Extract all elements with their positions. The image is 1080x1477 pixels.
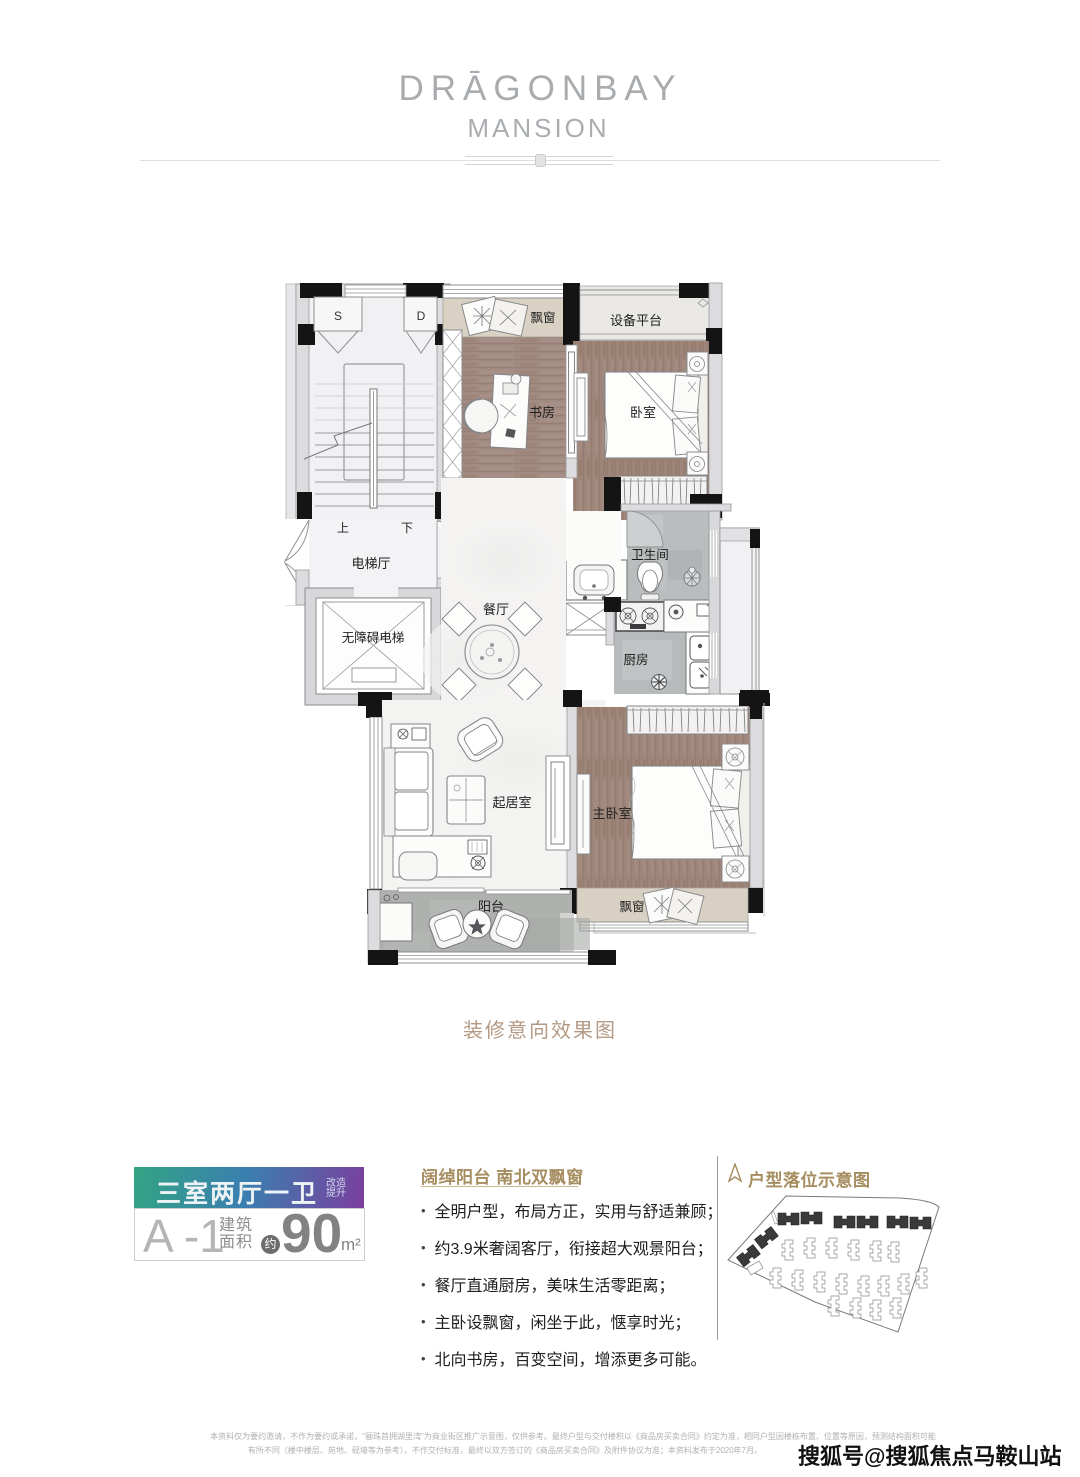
svg-text:上: 上 (337, 521, 349, 535)
svg-text:飘窗: 飘窗 (619, 900, 644, 914)
svg-text:电梯厅: 电梯厅 (351, 556, 390, 571)
svg-text:飘窗: 飘窗 (530, 311, 555, 325)
svg-text:S: S (334, 309, 342, 323)
svg-text:D: D (417, 309, 426, 323)
svg-text:卧室: 卧室 (630, 405, 656, 420)
svg-text:起居室: 起居室 (492, 795, 531, 810)
svg-text:下: 下 (401, 521, 413, 535)
svg-text:卫生间: 卫生间 (631, 548, 669, 562)
svg-text:厨房: 厨房 (623, 652, 648, 667)
svg-text:书房: 书房 (529, 405, 555, 420)
svg-text:无障碍电梯: 无障碍电梯 (342, 630, 405, 645)
svg-text:主卧室: 主卧室 (592, 806, 631, 821)
svg-text:设备平台: 设备平台 (610, 313, 662, 328)
svg-text:餐厅: 餐厅 (483, 602, 509, 617)
